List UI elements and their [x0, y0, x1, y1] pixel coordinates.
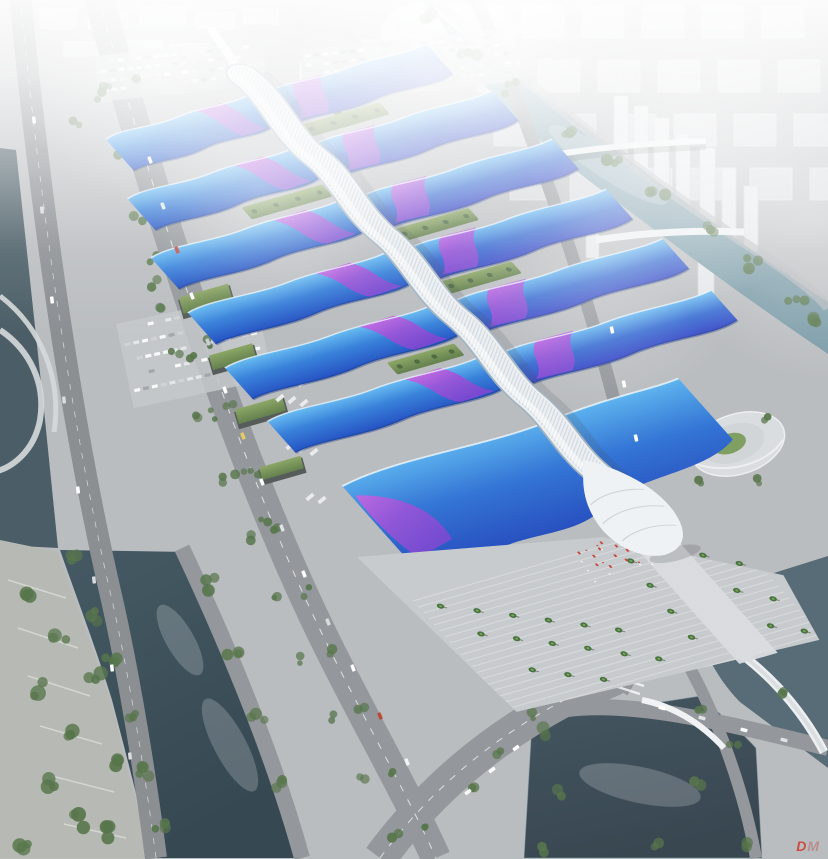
- fog-layer: [0, 0, 828, 859]
- aerial-rendering-canvas: [0, 0, 828, 859]
- watermark-letter-secondary: M: [807, 838, 820, 854]
- watermark: DM: [796, 838, 820, 854]
- watermark-letter-primary: D: [796, 838, 807, 854]
